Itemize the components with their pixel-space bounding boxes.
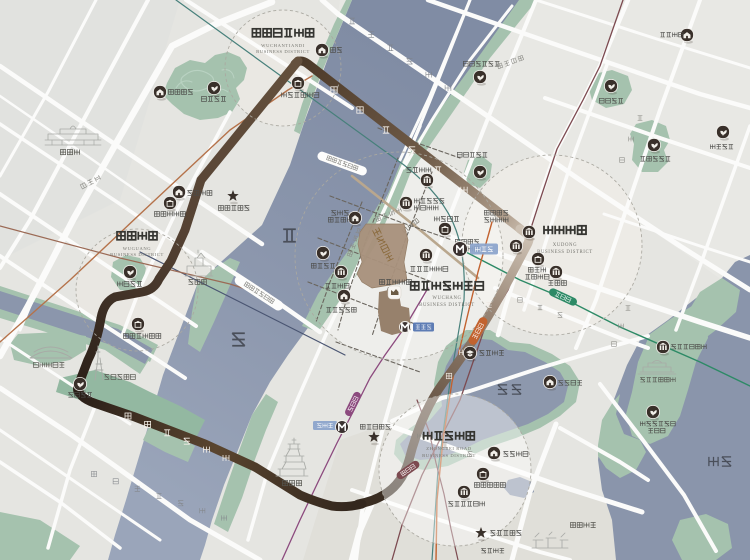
svg-text:BUSINESS DISTRICT: BUSINESS DISTRICT — [110, 252, 164, 257]
svg-text:BUSINESS DISTRICT: BUSINESS DISTRICT — [422, 453, 476, 458]
svg-text:BUSINESS DISTRICT: BUSINESS DISTRICT — [256, 49, 310, 54]
svg-text:WUCHANTIANDI: WUCHANTIANDI — [261, 43, 305, 48]
svg-text:ZHONGBEI ROAD: ZHONGBEI ROAD — [426, 446, 472, 451]
svg-text:BUSINESS DISTRICT: BUSINESS DISTRICT — [537, 250, 593, 255]
svg-text:WUCHANG: WUCHANG — [432, 296, 461, 301]
svg-text:BUSINESS DISTRICT: BUSINESS DISTRICT — [419, 303, 475, 308]
svg-text:XUDONG: XUDONG — [553, 243, 577, 248]
svg-text:WUGUANG: WUGUANG — [123, 246, 152, 251]
